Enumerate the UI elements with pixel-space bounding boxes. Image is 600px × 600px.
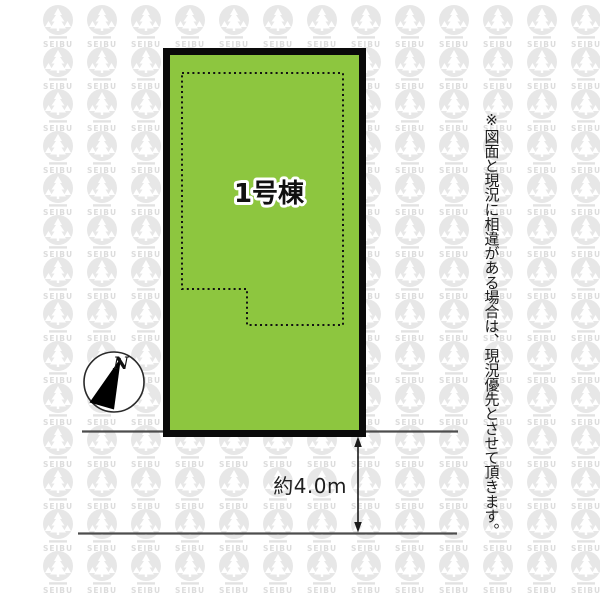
road-width-label: 約4.0m xyxy=(273,470,347,499)
road-width-dimension xyxy=(354,437,362,533)
compass: N xyxy=(84,352,144,412)
site-plan-diagram: SEIBU 1号棟 N 約4.0m ※図面と現況に相違がある場合は、現況優 xyxy=(0,0,600,600)
plot-outline xyxy=(167,52,363,434)
arrow-down-icon xyxy=(354,522,362,533)
disclaimer-text: ※図面と現況に相違がある場合は、現況優先とさせて頂きます。 xyxy=(483,111,500,551)
arrow-up-icon xyxy=(354,437,362,448)
plot-label: 1号棟 xyxy=(234,179,305,209)
compass-north-label: N xyxy=(112,354,130,374)
plan-drawing: 1号棟 N xyxy=(0,0,600,600)
